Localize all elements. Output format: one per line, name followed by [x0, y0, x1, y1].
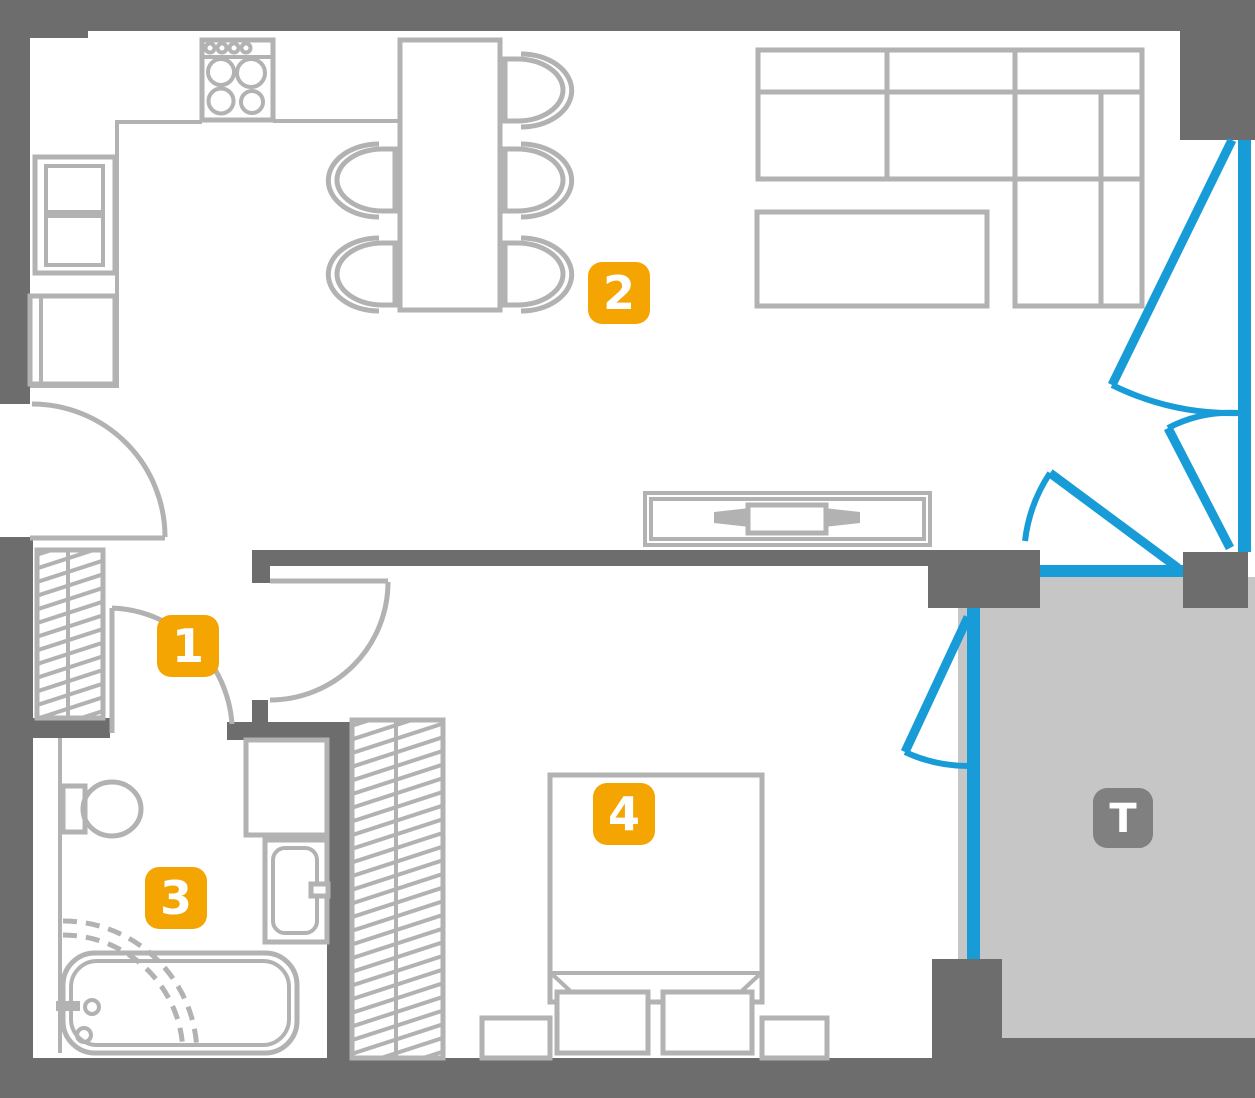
hall-bedroom-door — [270, 581, 388, 700]
room-label-1-text: 1 — [172, 619, 204, 673]
window-terrace-top — [1040, 565, 1183, 577]
balcony-door-living-lower — [1168, 413, 1238, 548]
room-label-3: 3 — [145, 867, 207, 929]
room-label-2-text: 2 — [603, 266, 635, 320]
balcony-door-living-south — [1025, 473, 1178, 568]
wall-bathroom-bedroom — [327, 722, 352, 1058]
kitchen-sink — [35, 157, 115, 273]
dining-chair — [328, 238, 395, 311]
bathtub — [56, 921, 297, 1055]
stove-knob — [242, 44, 251, 53]
tv-stand-right — [824, 508, 860, 527]
stove — [202, 40, 273, 120]
room-label-4: 4 — [593, 783, 655, 845]
wall-bathroom-top-right — [227, 722, 343, 740]
bathroom-vanity — [246, 740, 327, 835]
wall-bathroom-top-left — [33, 718, 110, 738]
dining-chair — [505, 238, 572, 311]
floor-plan: 1 2 3 4 T — [0, 0, 1255, 1098]
tv-screen — [748, 505, 826, 533]
stove-burner — [209, 89, 234, 114]
terrace-label: T — [1093, 788, 1153, 848]
room-label-2: 2 — [588, 262, 650, 324]
dining-chair — [505, 144, 572, 217]
wall-terrace-pillar-sw — [932, 959, 1002, 1062]
tv-stand-left — [714, 508, 750, 527]
pillow — [557, 992, 648, 1053]
stove-knob — [230, 44, 239, 53]
floor-plan-drawing: 1 2 3 4 T — [0, 0, 1255, 1098]
room-label-4-text: 4 — [608, 787, 640, 841]
wall-top — [0, 0, 1255, 31]
shower-screen — [63, 921, 197, 1055]
terrace-label-text: T — [1109, 796, 1137, 842]
nightstand-right — [762, 1018, 827, 1058]
dining-chair — [505, 54, 572, 127]
corner-sofa — [758, 50, 1142, 306]
window-bedroom-east — [967, 608, 980, 959]
stove-burner — [208, 59, 234, 85]
bedroom-wardrobe — [352, 720, 443, 1058]
room-label-3-text: 3 — [160, 871, 192, 925]
stove-burner — [237, 59, 265, 87]
wall-terrace-pillar-ne — [1183, 552, 1248, 608]
wall-living-bedroom — [252, 550, 930, 566]
dining-table — [400, 40, 500, 310]
kitchen-cabinet — [30, 296, 115, 384]
tv-unit — [645, 493, 930, 545]
pillow — [663, 992, 752, 1053]
kitchen — [30, 40, 400, 386]
entrance-door — [30, 404, 165, 538]
wall-corner-topright — [1180, 0, 1255, 140]
wall-left-upper — [0, 0, 30, 404]
coffee-table — [757, 212, 987, 306]
stove-knob — [218, 44, 227, 53]
wall-stub-hall-top — [252, 566, 270, 583]
stove-knob — [206, 44, 215, 53]
wall-stub-hall-bottom — [252, 700, 268, 723]
toilet — [63, 782, 141, 836]
wall-terrace-bottom — [1002, 1038, 1255, 1098]
dining-set — [328, 40, 571, 311]
washing-machine — [265, 840, 328, 942]
window-living-east — [1238, 140, 1251, 552]
washer-handle — [311, 884, 328, 896]
hall-closet — [37, 550, 103, 718]
nightstand-left — [482, 1018, 550, 1058]
wall-terrace-pillar-nw — [928, 550, 1040, 608]
bed — [550, 775, 762, 1053]
dining-chair — [328, 144, 395, 217]
room-label-1: 1 — [157, 615, 219, 677]
tub-faucet — [85, 1000, 99, 1014]
stove-burner — [241, 91, 263, 113]
wall-left-lower — [0, 537, 33, 1098]
tub-spout — [56, 1001, 80, 1011]
